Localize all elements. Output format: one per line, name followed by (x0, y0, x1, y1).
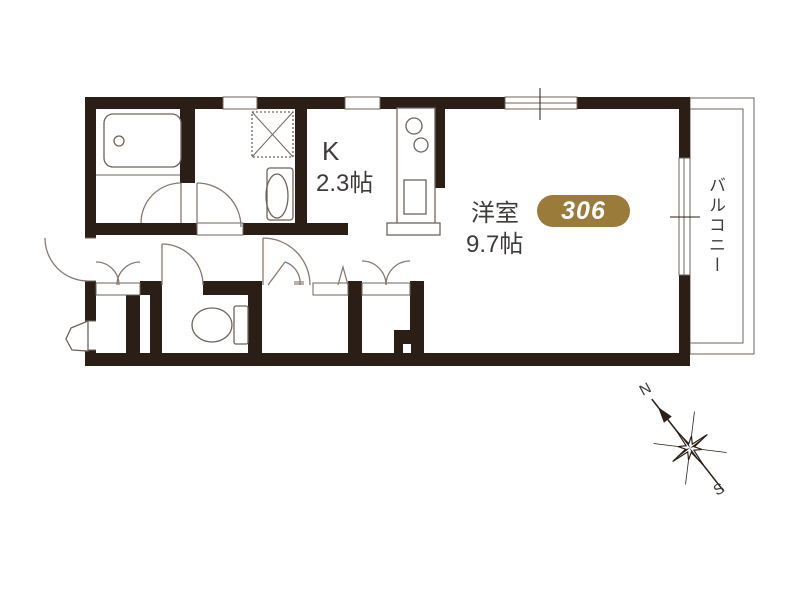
wall-toilet-right (248, 281, 262, 353)
closet-double-door-icon (96, 262, 119, 285)
floor-plan-drawing (0, 0, 800, 600)
wall-toilet-left (150, 295, 162, 353)
wall-left-mid (85, 281, 96, 321)
bathtub-icon (104, 114, 181, 167)
folding-door-icon (338, 267, 348, 285)
kitchen-counter-icon (397, 108, 435, 225)
closet-double-door-icon (117, 262, 140, 285)
wall-entry-header (140, 281, 162, 295)
unit-number-badge: 306 (537, 195, 630, 227)
wall-toilet-front (203, 281, 248, 295)
kitchen-size-label: 2.3帖 (316, 163, 373, 198)
compass-rose-icon (631, 383, 744, 507)
door-swing-icon (141, 183, 181, 223)
western-room-label: 洋室 (471, 193, 519, 228)
balcony-label: バルコニー (703, 176, 728, 276)
closet-double-door-icon (362, 261, 386, 285)
pipe-space-notch (403, 344, 411, 353)
wall-storage-closet (348, 281, 362, 353)
wall-entry-leg-left (126, 295, 140, 353)
vanity-counter (267, 168, 293, 220)
wall-bath-washroom (180, 97, 195, 183)
entrance-door-swing (45, 238, 88, 281)
compass-arrow (654, 404, 672, 423)
closet-front (313, 283, 348, 295)
door-swing-icon (162, 244, 203, 285)
wall-right-lower (679, 275, 690, 353)
wall-washroom-kitchen (295, 97, 307, 235)
washroom-door-opening (197, 223, 243, 235)
closet-front (96, 283, 140, 295)
wall-hall-top-right (243, 223, 348, 235)
sliding-window-icon (223, 97, 257, 109)
counter-base (387, 223, 440, 235)
wall-bottom (85, 353, 690, 366)
toilet-tank (234, 306, 248, 344)
sliding-window-icon (345, 97, 380, 109)
wall-left-upper (85, 97, 96, 238)
door-stop (294, 281, 304, 285)
floor-plan: K 2.3帖 洋室 9.7帖 306 バルコニー N S (0, 0, 800, 600)
wall-right-upper (679, 97, 690, 158)
door-swing-icon (197, 183, 241, 227)
wall-closet-mainroom (410, 281, 424, 353)
door-swing-icon (263, 238, 310, 285)
closet-double-door-icon (386, 261, 410, 285)
entrance-door-icon (66, 321, 88, 351)
wall-hall-top-left (85, 223, 197, 235)
compass-star (654, 412, 727, 485)
toilet-icon (192, 308, 232, 342)
wall-top (85, 97, 690, 109)
western-room-size-label: 9.7帖 (466, 224, 523, 259)
